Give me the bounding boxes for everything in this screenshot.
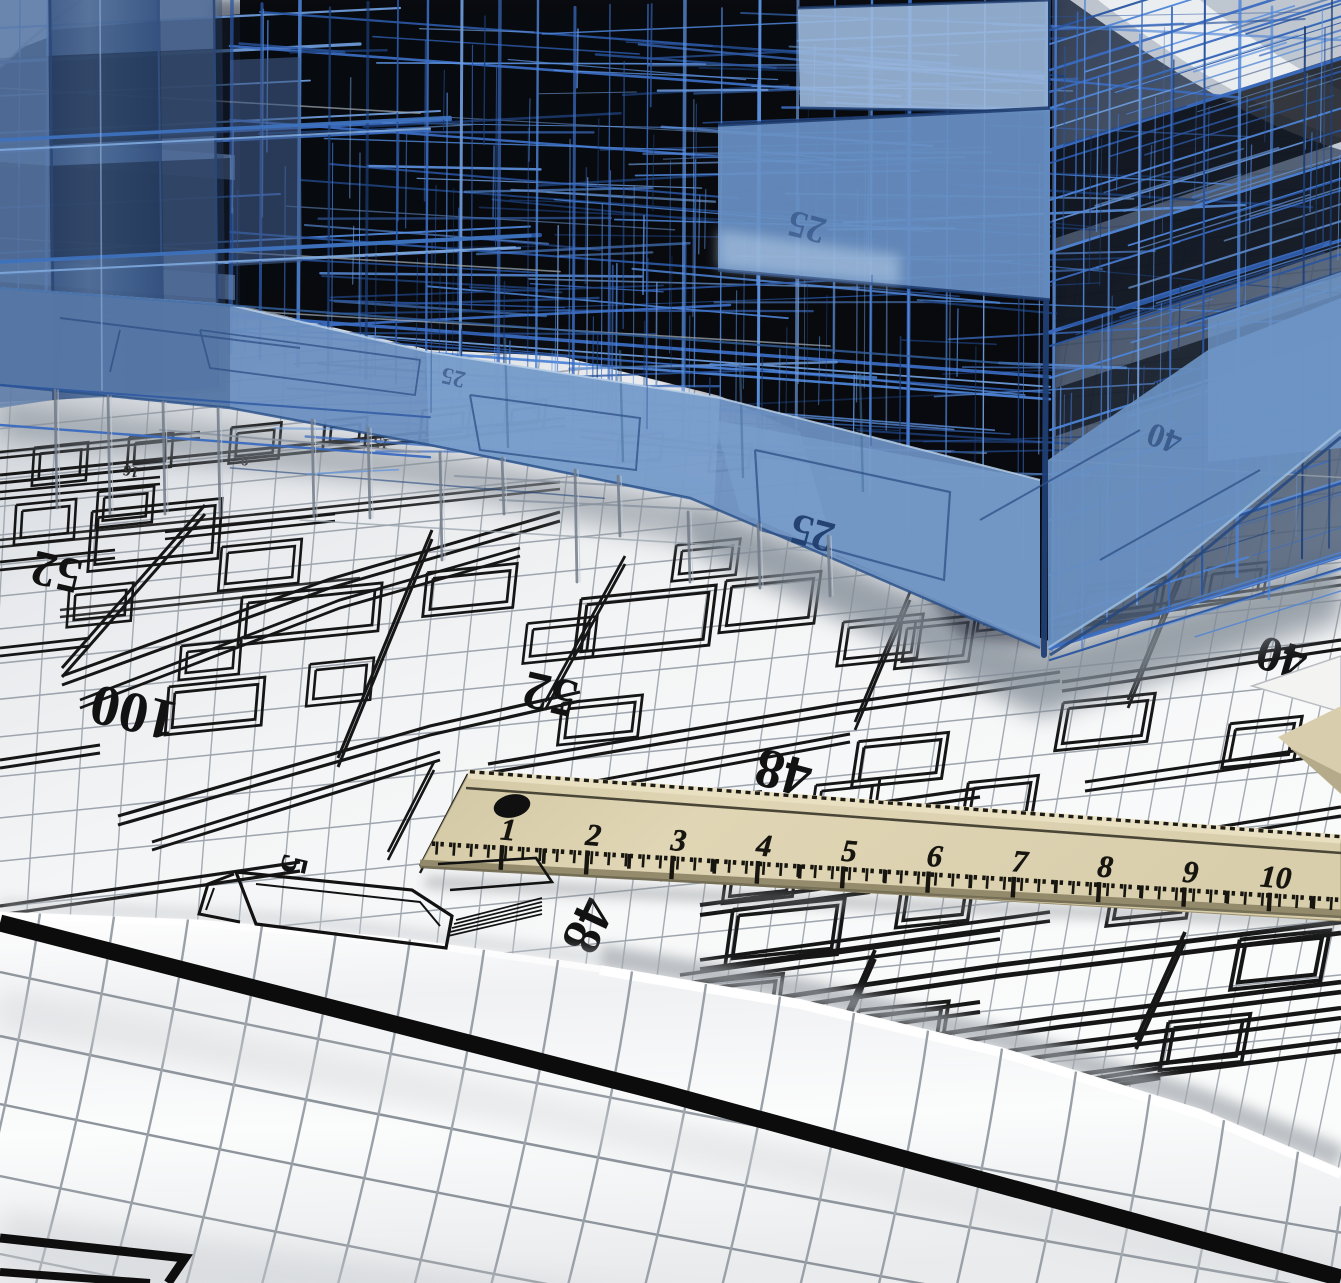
svg-text:3: 3 bbox=[669, 822, 688, 858]
svg-text:1: 1 bbox=[499, 811, 517, 847]
svg-text:2: 2 bbox=[583, 817, 602, 853]
svg-text:5: 5 bbox=[840, 833, 858, 869]
svg-text:4: 4 bbox=[754, 827, 773, 863]
svg-text:9: 9 bbox=[1181, 854, 1199, 890]
svg-text:10: 10 bbox=[1259, 858, 1293, 896]
